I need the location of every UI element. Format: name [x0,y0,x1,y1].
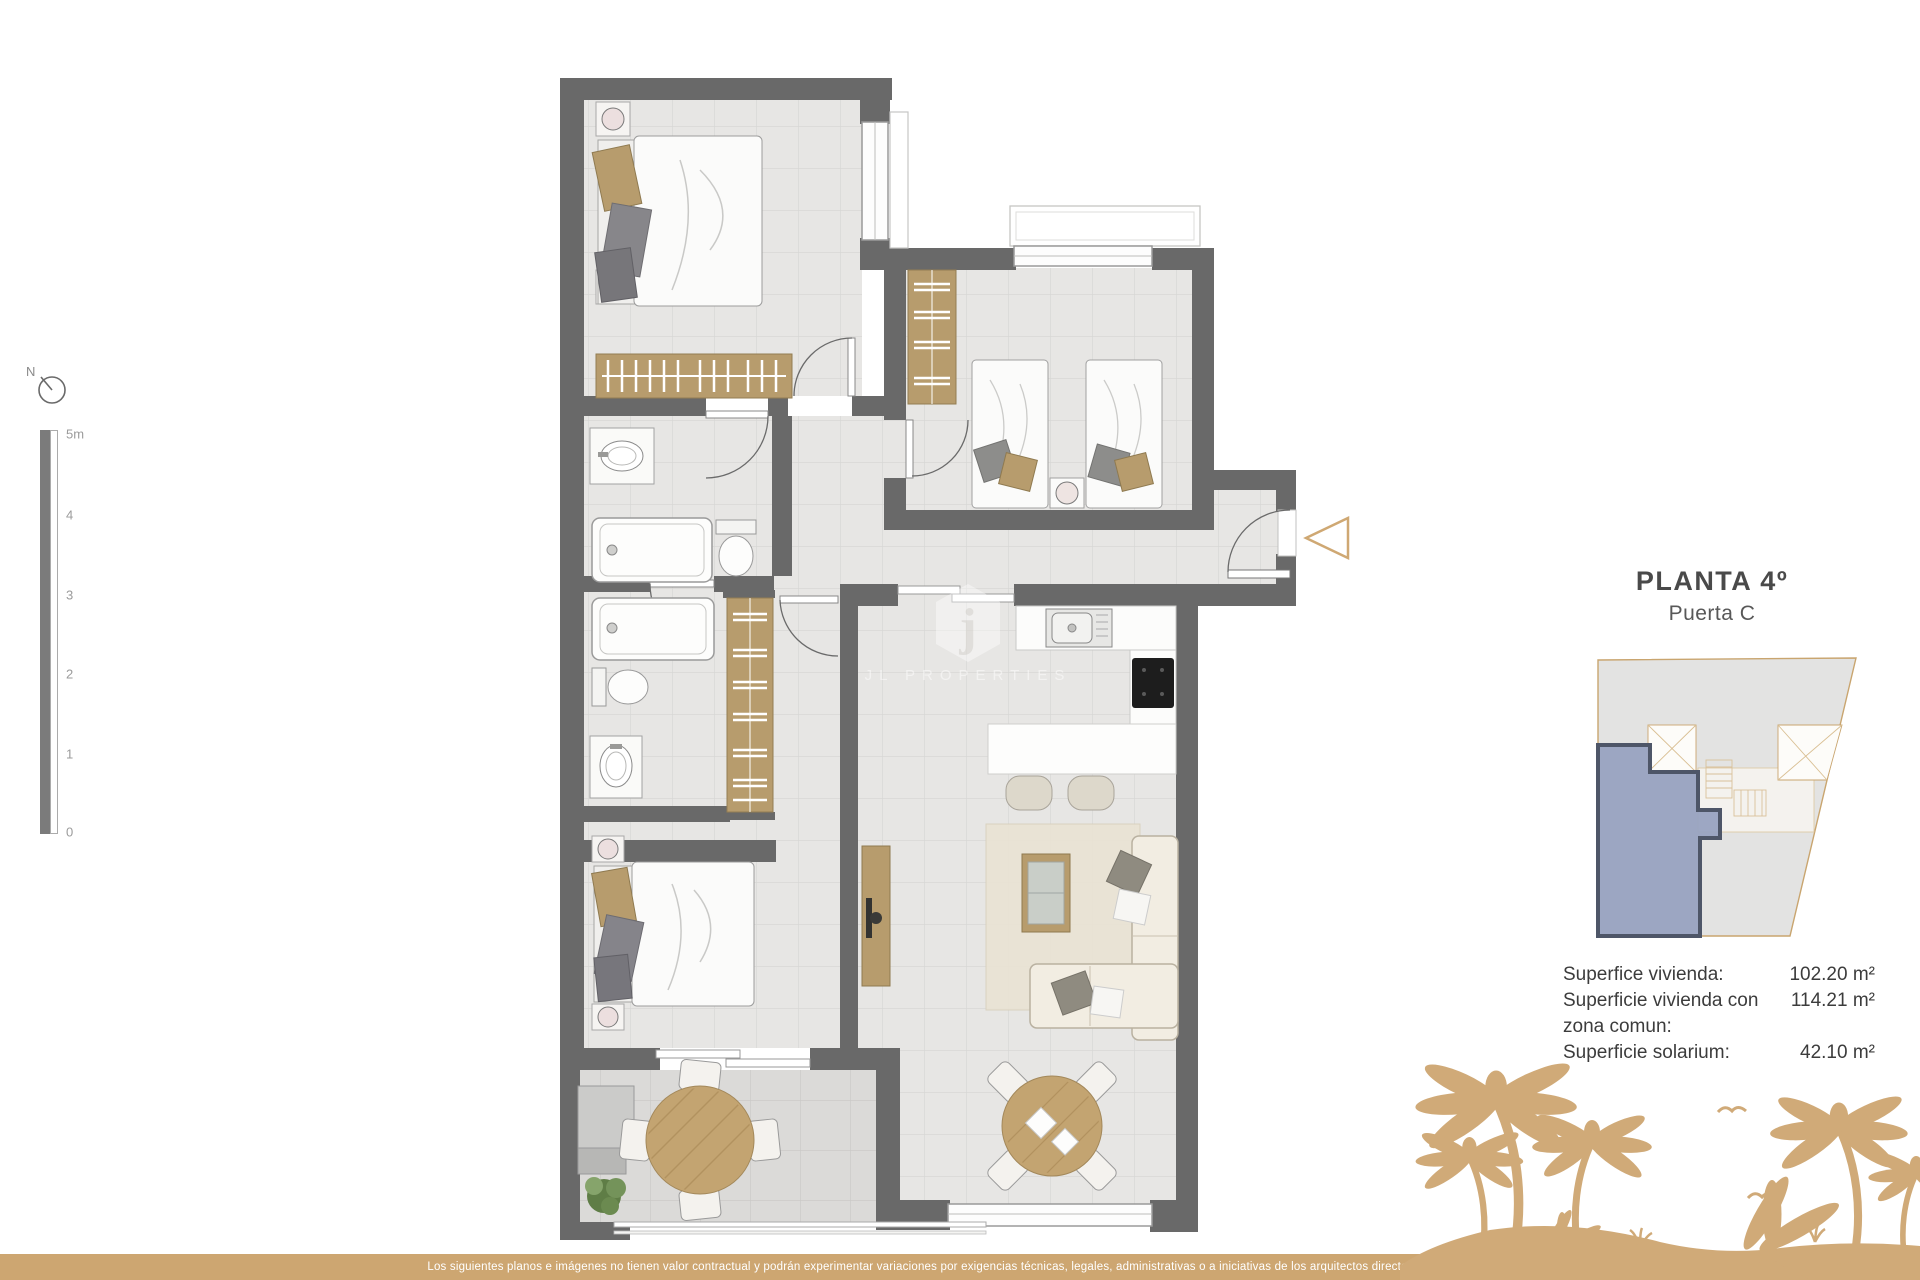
cooktop [1132,658,1174,708]
scale-tick: 1 [66,747,73,762]
stool [1068,776,1114,810]
north-indicator: N [22,360,78,416]
scale-tick: 0 [66,825,73,840]
entrance-door-gap [1278,510,1296,556]
plan-title-block: PLANTA 4º Puerta C [1587,566,1837,626]
floorplan-page: j JL PROPERTIES N 5m 4 3 2 1 0 PLANTA 4º… [0,0,1920,1280]
toilet [592,668,648,706]
lamp [602,108,624,130]
toilet [716,520,756,576]
entrance-arrow-icon [1306,518,1348,558]
lamp [598,839,618,859]
area-row: Superficie vivienda con zona comun: 114.… [1563,988,1875,1040]
tv-unit [862,846,890,986]
north-label: N [26,364,35,379]
kitchen-sink [1046,609,1112,647]
washbasin [590,736,642,798]
scale-bar: 5m 4 3 2 1 0 [40,430,130,834]
cushion [1113,889,1151,925]
light-well [1778,725,1842,780]
washbasin [590,428,654,484]
bathtub [592,598,714,660]
pillow [1115,453,1154,492]
scale-tick: 3 [66,588,73,603]
stool [1006,776,1052,810]
terrace-table [646,1086,754,1194]
pillow [594,954,632,1001]
area-table: Superfice vivienda: 102.20 m² Superficie… [1563,962,1875,1066]
scale-tick: 4 [66,508,73,523]
area-row: Superficie solarium: 42.10 m² [1563,1040,1875,1066]
pillow [595,248,638,303]
bedroom3-sliding-door [656,1050,810,1067]
watermark-badge-letter: j [958,599,976,656]
living-furniture [986,824,1178,1040]
key-plan [1580,640,1880,950]
area-value: 42.10 m² [1785,1040,1875,1066]
watermark-brand: JL PROPERTIES [865,667,1072,684]
plan-subtitle: Puerta C [1587,602,1837,626]
bathtub [592,518,712,582]
area-row: Superfice vivienda: 102.20 m² [1563,962,1875,988]
bedroom1-furniture [592,102,792,398]
single-bed [1086,360,1162,508]
area-label: Superficie vivienda con zona comun: [1563,988,1785,1040]
light-well [1648,725,1696,772]
coffee-table [1022,854,1070,932]
double-bed [592,862,754,1006]
lamp [1056,482,1078,504]
scale-bar-outline [50,430,58,834]
area-label: Superfice vivienda: [1563,962,1785,988]
disclaimer-text: Los siguientes planos e imágenes no tien… [0,1254,1920,1273]
lamp [598,1007,618,1027]
scale-tick: 2 [66,667,73,682]
double-bed [592,136,762,306]
twin-wardrobe [908,270,956,404]
area-value: 102.20 m² [1785,962,1875,988]
area-label: Superficie solarium: [1563,1040,1785,1066]
area-value: 114.21 m² [1785,988,1875,1014]
single-bed [972,360,1048,508]
scale-tick: 5m [66,427,84,442]
hall-wardrobe [727,598,773,812]
window-sill [890,112,908,248]
bedroom1-wardrobe [596,354,792,398]
disclaimer-bar: Los siguientes planos e imágenes no tien… [0,1254,1920,1280]
cushion [1090,986,1124,1018]
pillow [999,453,1038,492]
plan-title: PLANTA 4º [1587,566,1837,597]
scale-bar-fill [40,430,50,834]
kitchen-island [988,724,1176,774]
storage-unit [578,1148,626,1174]
